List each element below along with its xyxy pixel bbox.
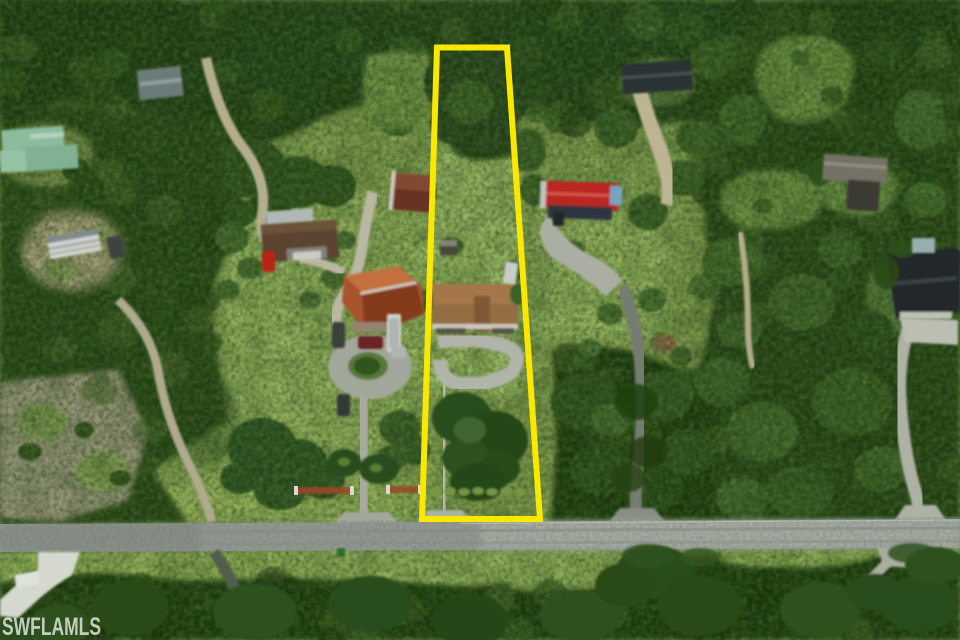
- svg-text:SWFLAMLS: SWFLAMLS: [2, 613, 101, 640]
